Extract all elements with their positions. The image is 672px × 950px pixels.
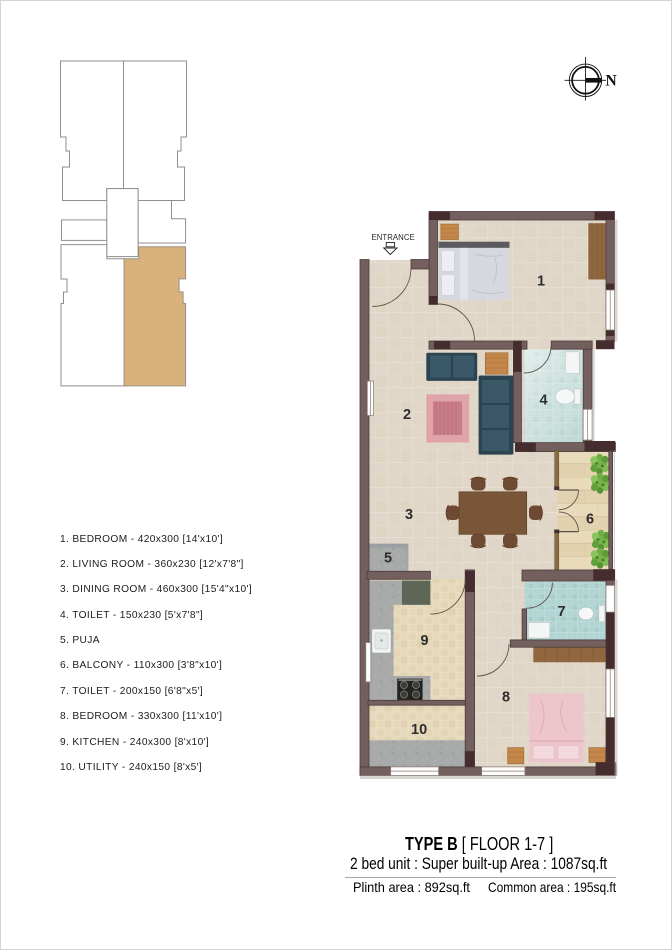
svg-text:4: 4 <box>540 393 548 409</box>
svg-text:8: 8 <box>502 690 510 706</box>
svg-text:ENTRANCE: ENTRANCE <box>372 233 415 242</box>
svg-text:1: 1 <box>537 274 545 290</box>
svg-text:7: 7 <box>558 604 566 620</box>
svg-text:6: 6 <box>586 512 594 528</box>
svg-text:5: 5 <box>384 551 392 567</box>
svg-text:10: 10 <box>411 722 427 738</box>
svg-text:2: 2 <box>403 407 411 423</box>
svg-text:9: 9 <box>421 633 429 649</box>
svg-text:3: 3 <box>405 507 413 523</box>
svg-text:N: N <box>606 73 617 90</box>
